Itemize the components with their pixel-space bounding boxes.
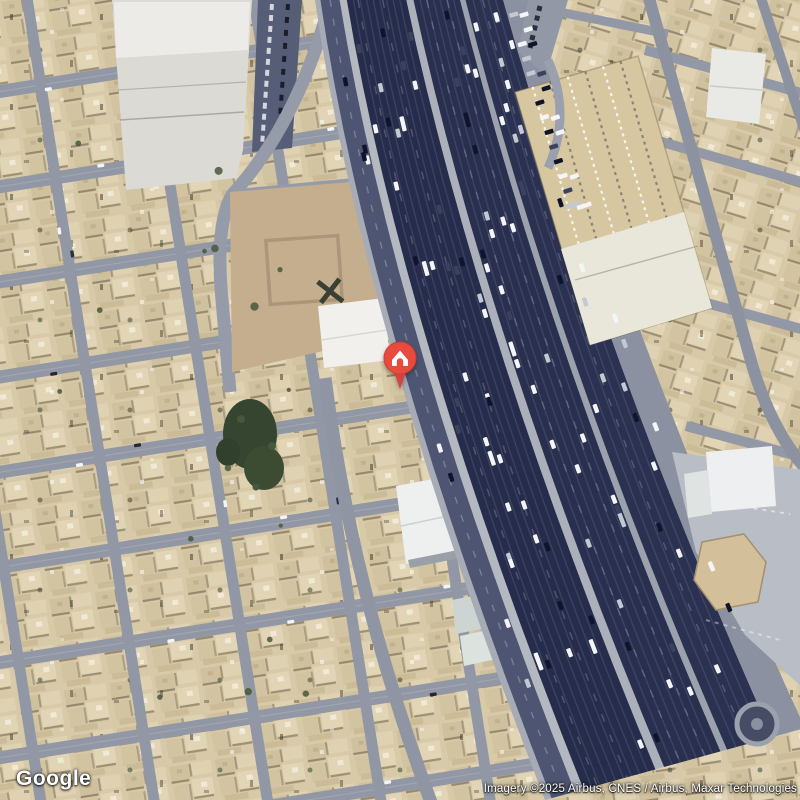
- location-marker[interactable]: [380, 336, 420, 392]
- map-canvas[interactable]: Google Imagery ©2025 Airbus, CNES / Airb…: [0, 0, 800, 800]
- satellite-imagery-layer: [0, 0, 800, 800]
- white-roof-building: [706, 446, 776, 512]
- map-attribution: Imagery ©2025 Airbus, CNES / Airbus, Max…: [484, 783, 797, 795]
- google-logo[interactable]: Google: [16, 767, 91, 791]
